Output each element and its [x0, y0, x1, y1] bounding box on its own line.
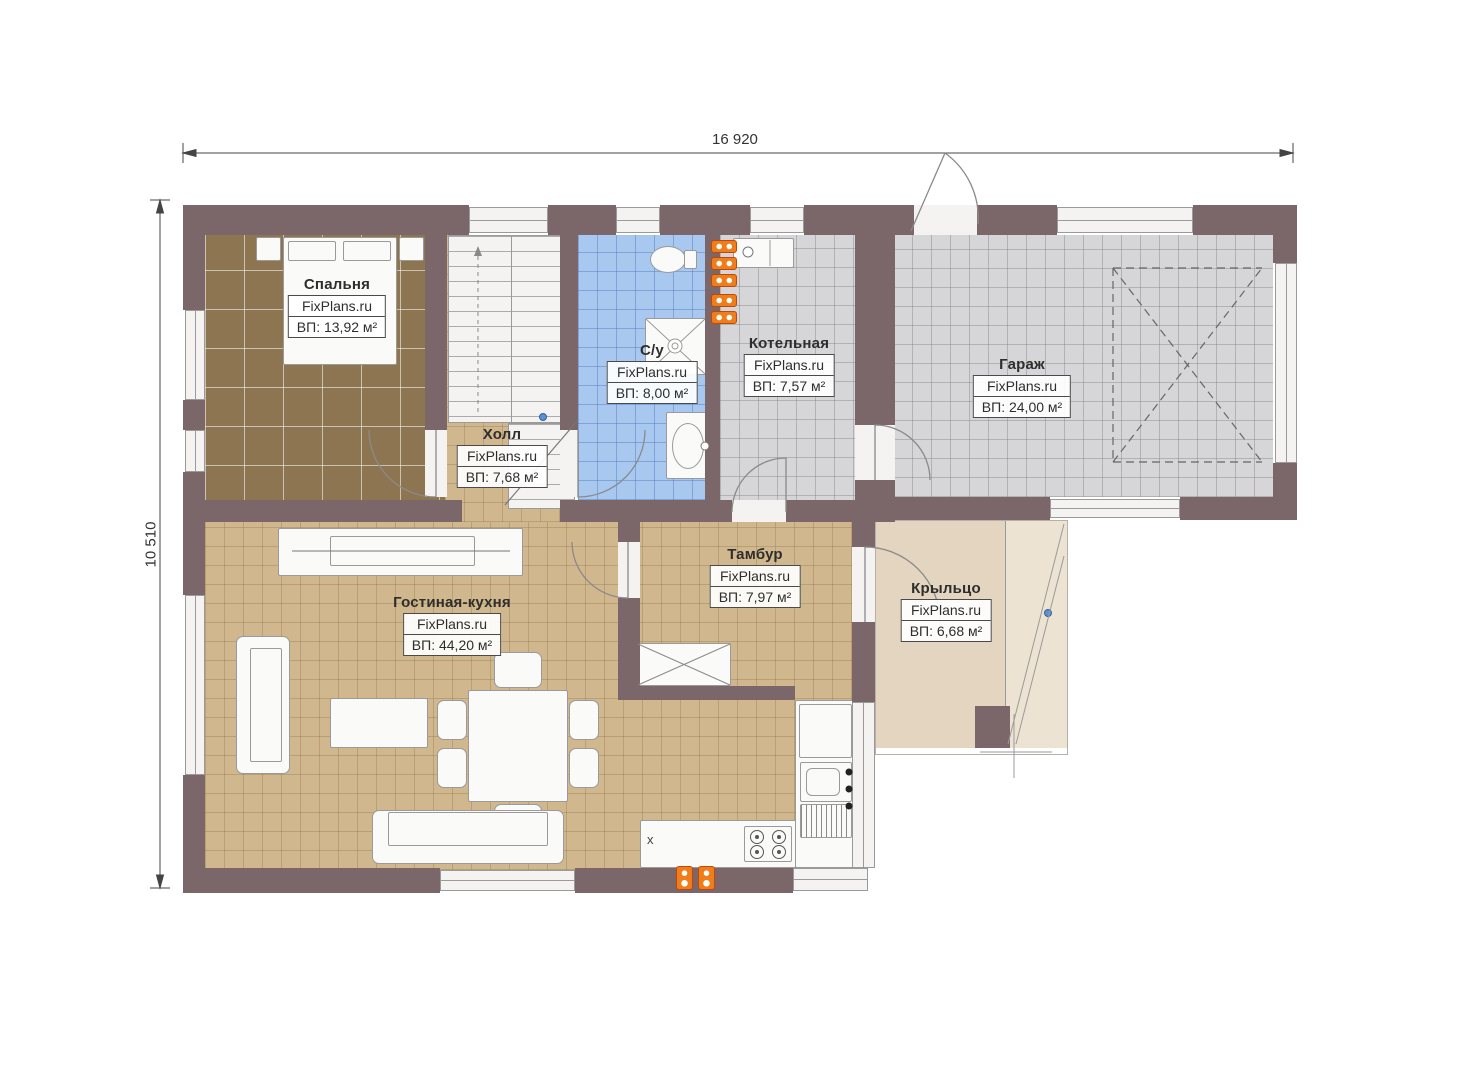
room-area-bathroom: ВП: 8,00 м² [608, 382, 697, 403]
brand-label: FixPlans.ru [608, 362, 697, 382]
wall-vestibule-right-1 [852, 520, 875, 547]
dishwasher [800, 804, 852, 838]
boiler-door-gap [732, 500, 786, 522]
radiator-stack-5 [711, 311, 737, 324]
nightstand-right [399, 237, 424, 261]
room-label-bathroom: С/у FixPlans.ruВП: 8,00 м² [607, 342, 698, 404]
wall-mid-1 [183, 500, 462, 522]
bed-pillow-right [343, 241, 391, 261]
brand-label: FixPlans.ru [902, 600, 991, 620]
bedroom-door-gap [425, 430, 447, 497]
wall-vestibule-2 [618, 598, 640, 690]
wall-left-2 [183, 400, 205, 430]
window-kitchen-bottom [793, 868, 868, 891]
wall-bathroom-left [560, 235, 578, 430]
wall-top-5 [977, 205, 1057, 235]
brand-label: FixPlans.ru [289, 296, 385, 316]
garage-door-opening [1275, 263, 1297, 463]
wall-top-4 [804, 205, 914, 235]
room-name-bedroom: Спальня [288, 276, 386, 293]
tv [330, 536, 475, 566]
wall-mid-2 [560, 500, 732, 522]
staircase-divider [511, 235, 512, 423]
wall-vestibule-right-2 [852, 622, 875, 702]
wall-top-2 [548, 205, 616, 235]
window-bottom-living [440, 870, 575, 891]
room-name-porch: Крыльцо [901, 580, 992, 597]
room-area-vestibule: ВП: 7,97 м² [711, 586, 800, 607]
room-label-bedroom: Спальня FixPlans.ruВП: 13,92 м² [288, 276, 386, 338]
window-top-bathroom [616, 207, 660, 233]
wall-garage-left-1 [855, 235, 895, 425]
room-label-hall: Холл FixPlans.ruВП: 7,68 м² [457, 426, 548, 488]
dining-chair-right-1 [569, 700, 599, 740]
window-top-stairs [469, 207, 548, 233]
vanity-basin [672, 423, 704, 469]
fridge [799, 704, 852, 758]
radiator-kitchen-1 [676, 866, 693, 890]
toilet-tank [684, 250, 697, 269]
window-top-boiler [750, 207, 804, 233]
bed-pillow-left [288, 241, 336, 261]
radiator-stack-2 [711, 257, 737, 270]
dining-chair-left-1 [437, 700, 467, 740]
room-area-porch: ВП: 6,68 м² [902, 620, 991, 641]
room-label-boiler: Котельная FixPlans.ruВП: 7,57 м² [744, 335, 835, 397]
entry-door-opening [914, 205, 977, 235]
window-left-living [185, 595, 205, 775]
radiator-stack-1 [711, 240, 737, 253]
window-left-bedroom-2 [185, 430, 205, 472]
radiator-stack-4 [711, 294, 737, 307]
wall-vestibule-bottom [618, 686, 795, 700]
wall-top-3 [660, 205, 750, 235]
window-kitchen-side [852, 702, 875, 868]
window-left-bedroom-1 [185, 310, 205, 400]
nightstand-left [256, 237, 281, 261]
wall-garage-right-2 [1273, 463, 1297, 520]
dining-chair-left-2 [437, 748, 467, 788]
room-name-hall: Холл [457, 426, 548, 443]
floor-plan: x [0, 0, 1474, 1080]
garage-floor [893, 235, 1273, 497]
sofa-bottom-seat [388, 812, 548, 846]
room-area-garage: ВП: 24,00 м² [974, 396, 1070, 417]
wall-left-3 [183, 472, 205, 595]
radiator-stack-3 [711, 274, 737, 287]
radiator-kitchen-2 [698, 866, 715, 890]
room-label-porch: Крыльцо FixPlans.ruВП: 6,68 м² [901, 580, 992, 642]
stove [744, 826, 792, 862]
dining-chair-top [494, 652, 542, 688]
coffee-table [330, 698, 428, 748]
room-name-vestibule: Тамбур [710, 546, 801, 563]
wardrobe [637, 643, 731, 686]
porch-column [975, 706, 1010, 748]
room-area-bedroom: ВП: 13,92 м² [289, 316, 385, 337]
wall-garage-bottom-1 [875, 497, 1050, 520]
dining-chair-right-2 [569, 748, 599, 788]
dimension-top-label: 16 920 [712, 131, 758, 148]
porch-door-gap [852, 547, 875, 622]
garage-side-door-gap [855, 425, 895, 480]
room-name-boiler: Котельная [744, 335, 835, 352]
brand-label: FixPlans.ru [404, 614, 500, 634]
boiler-counter [733, 238, 794, 268]
brand-label: FixPlans.ru [745, 355, 834, 375]
kitchen-sink-basin [806, 768, 840, 796]
brand-label: FixPlans.ru [974, 376, 1070, 396]
wall-garage-right-1 [1273, 205, 1297, 263]
window-top-garage [1057, 207, 1193, 233]
kitchen-x-mark: x [647, 832, 654, 847]
room-name-garage: Гараж [973, 356, 1071, 373]
wall-left-1 [183, 205, 205, 310]
wall-top-1 [183, 205, 469, 235]
room-label-living: Гостиная-кухня FixPlans.ruВП: 44,20 м² [393, 594, 511, 656]
room-name-bathroom: С/у [607, 342, 698, 359]
room-label-vestibule: Тамбур FixPlans.ruВП: 7,97 м² [710, 546, 801, 608]
living-door-gap [618, 542, 640, 598]
brand-label: FixPlans.ru [458, 446, 547, 466]
brand-label: FixPlans.ru [711, 566, 800, 586]
marker-dot-porch [1044, 609, 1052, 617]
window-garage-bottom [1050, 499, 1180, 518]
room-area-living: ВП: 44,20 м² [404, 634, 500, 655]
room-area-hall: ВП: 7,68 м² [458, 466, 547, 487]
dining-table [468, 690, 568, 802]
wall-vestibule-1 [618, 522, 640, 542]
wall-garage-left-2 [855, 480, 895, 520]
bathroom-door-gap [560, 430, 578, 497]
marker-dot-stairs [539, 413, 547, 421]
room-name-living: Гостиная-кухня [393, 594, 511, 611]
room-area-boiler: ВП: 7,57 м² [745, 375, 834, 396]
room-label-garage: Гараж FixPlans.ruВП: 24,00 м² [973, 356, 1071, 418]
toilet-bowl [650, 246, 686, 273]
dimension-left-label: 10 510 [142, 522, 159, 568]
sofa-left-seat [250, 648, 282, 762]
wall-bottom-1 [183, 868, 440, 893]
wall-bedroom-right [425, 235, 447, 430]
